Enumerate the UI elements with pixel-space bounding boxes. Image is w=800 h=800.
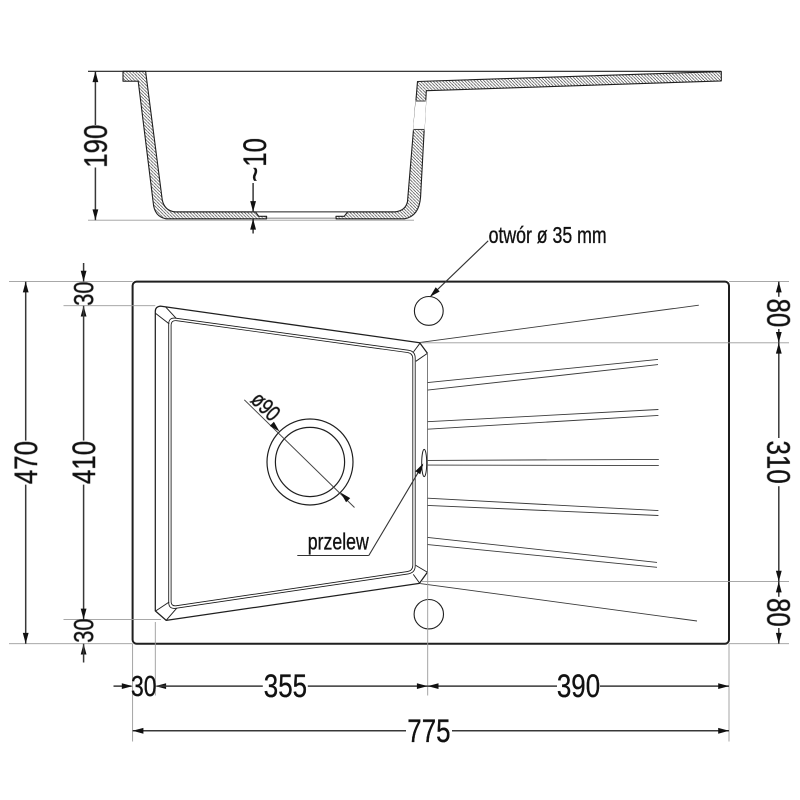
svg-text:otwór ø 35 mm: otwór ø 35 mm [489, 223, 607, 249]
svg-text:310: 310 [760, 440, 797, 483]
svg-text:80: 80 [760, 598, 797, 627]
svg-text:~10: ~10 [237, 138, 274, 182]
svg-text:355: 355 [264, 668, 307, 705]
svg-text:775: 775 [407, 713, 450, 750]
svg-text:190: 190 [78, 125, 115, 168]
svg-text:30: 30 [70, 282, 100, 306]
svg-text:390: 390 [557, 668, 600, 705]
svg-text:410: 410 [66, 441, 103, 484]
svg-text:80: 80 [760, 298, 797, 327]
svg-text:30: 30 [70, 619, 100, 643]
svg-text:przelew: przelew [308, 529, 369, 555]
svg-text:30: 30 [131, 669, 156, 702]
svg-text:470: 470 [8, 441, 45, 484]
